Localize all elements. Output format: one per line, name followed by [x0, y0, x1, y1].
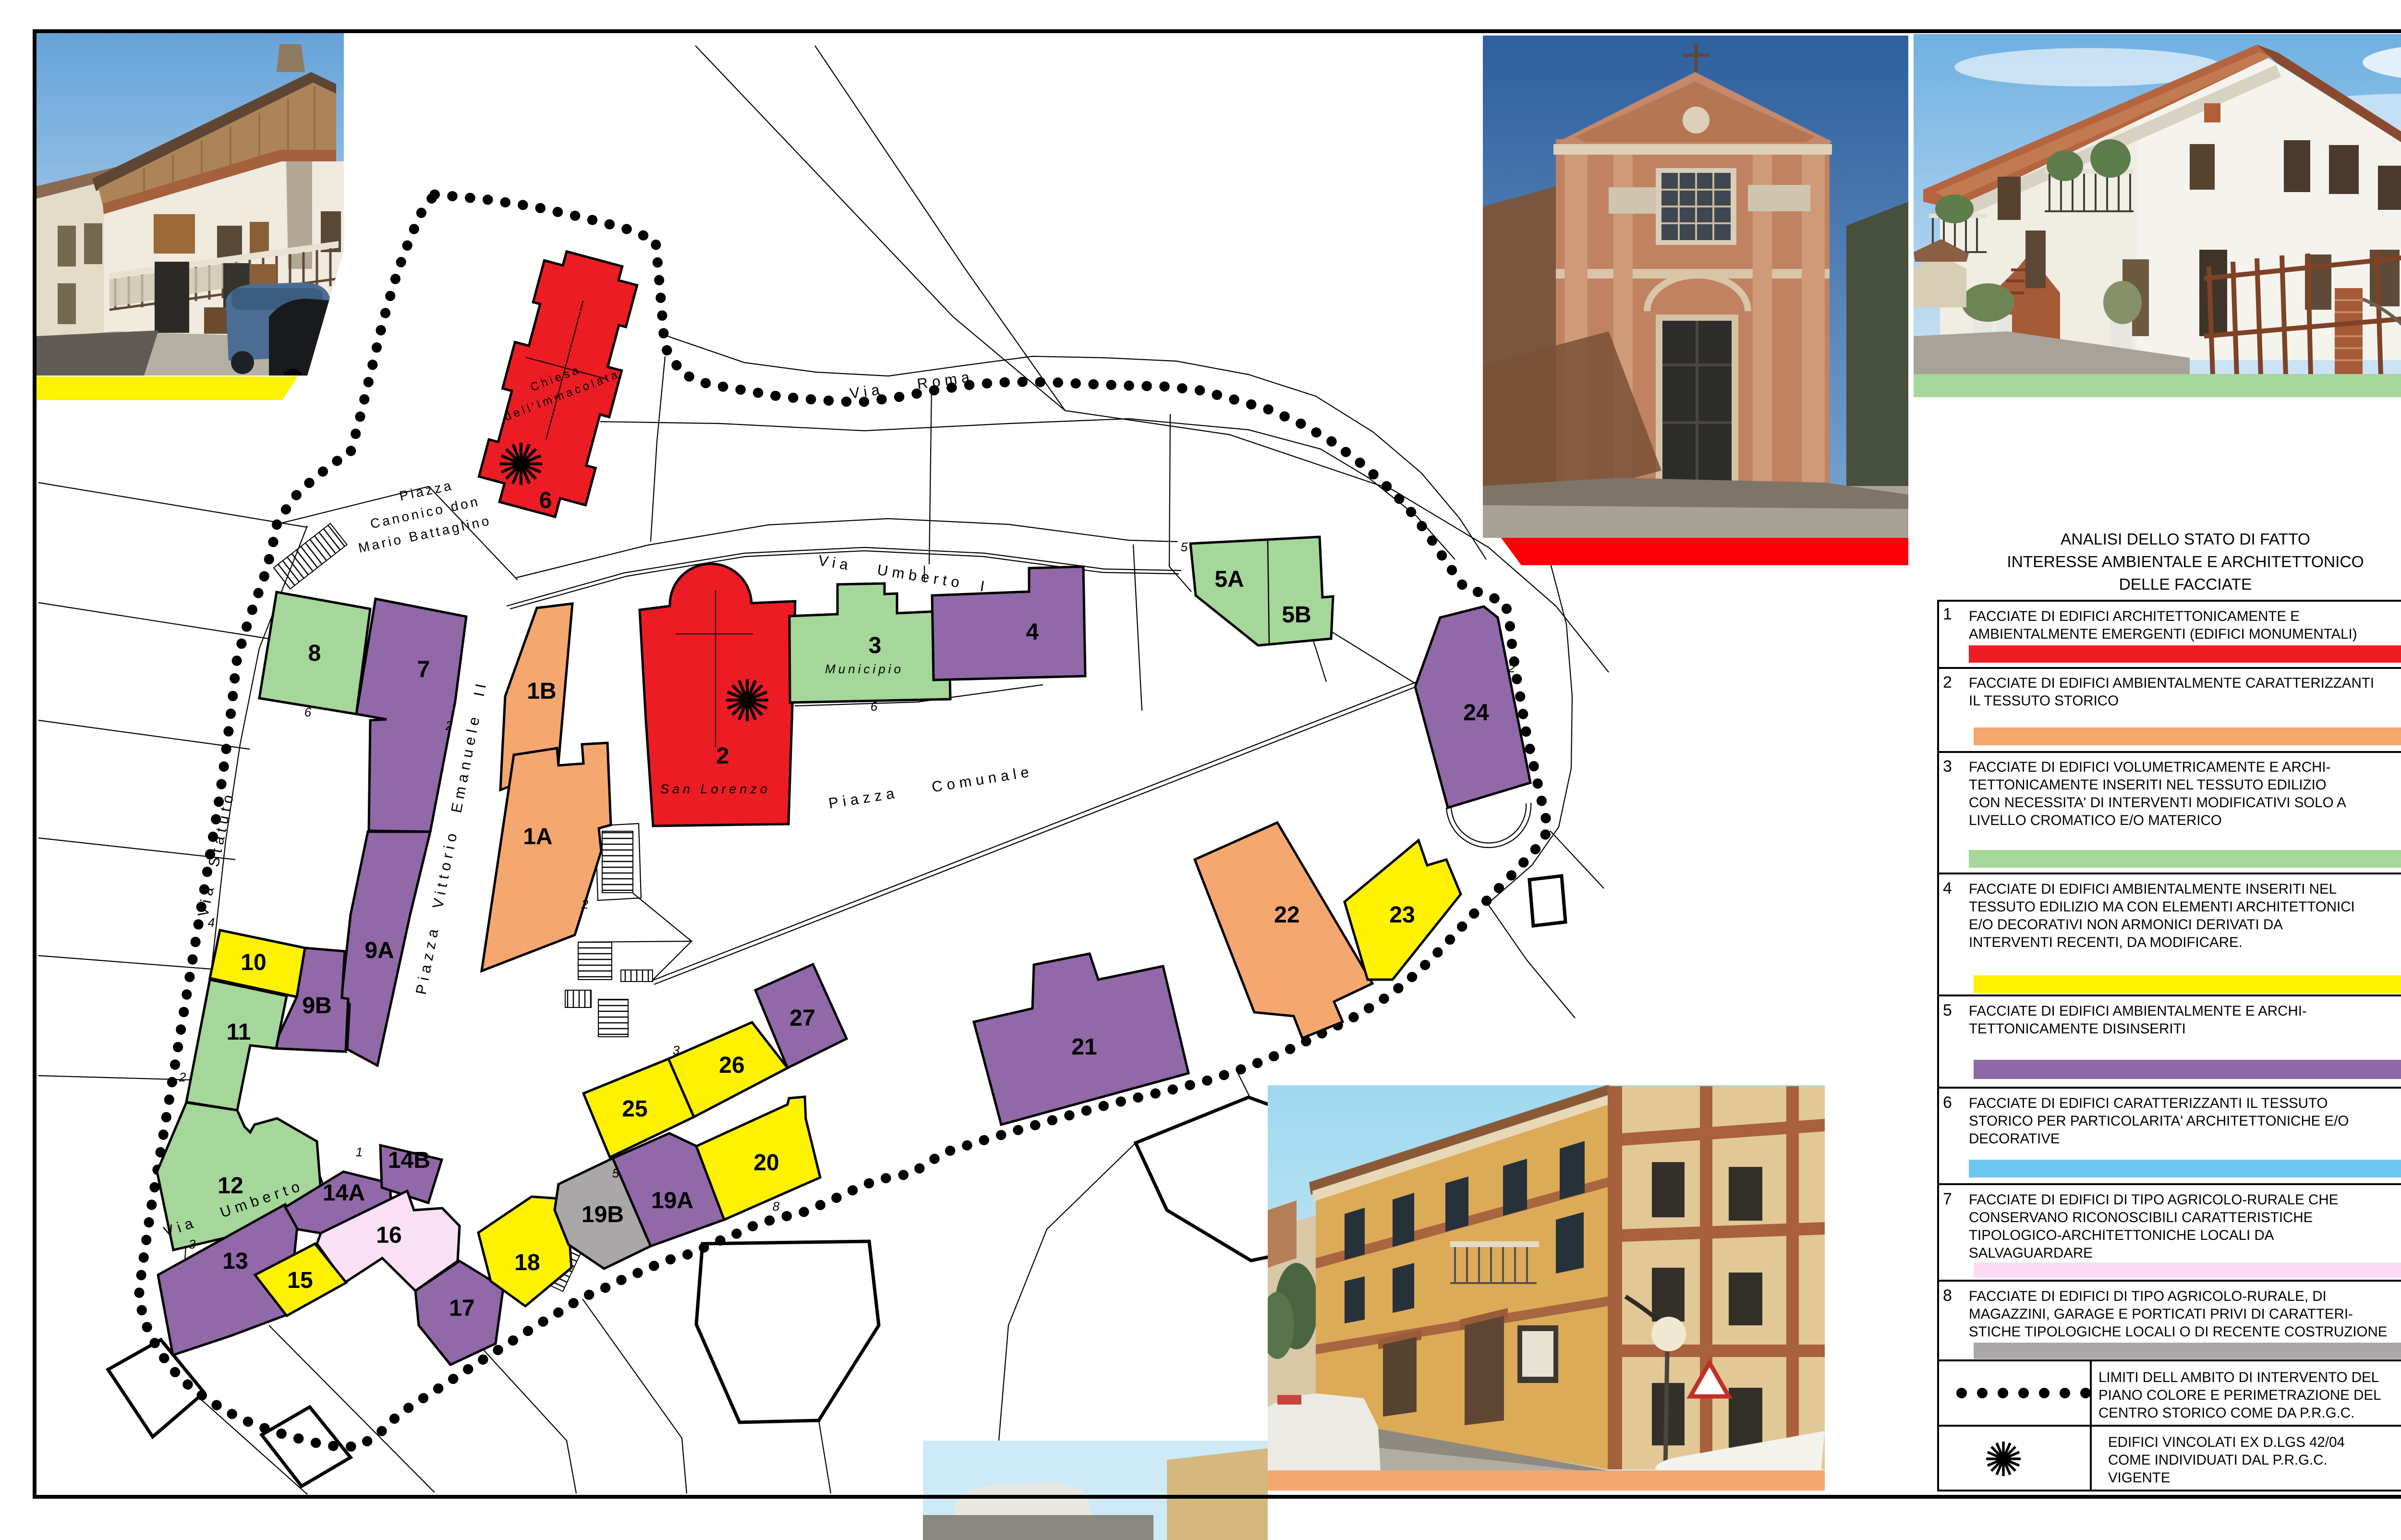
svg-text:11: 11 [227, 1019, 251, 1045]
svg-text:1: 1 [356, 1145, 363, 1159]
svg-text:5A: 5A [1214, 567, 1244, 592]
svg-text:2: 2 [1508, 661, 1516, 675]
svg-text:10: 10 [241, 950, 266, 975]
svg-text:3: 3 [869, 633, 882, 658]
svg-text:3: 3 [189, 1237, 196, 1251]
svg-text:LIMITI DELL AMBITO DI INTERVEN: LIMITI DELL AMBITO DI INTERVENTO DEL [2098, 1370, 2379, 1385]
svg-text:19A: 19A [651, 1188, 693, 1213]
svg-text:FACCIATE DI EDIFICI DI TIPO AG: FACCIATE DI EDIFICI DI TIPO AGRICOLO-RUR… [1969, 1192, 2338, 1208]
svg-text:DELLE FACCIATE: DELLE FACCIATE [2119, 576, 2252, 594]
svg-text:EDIFICI VINCOLATI EX D.LGS 42/: EDIFICI VINCOLATI EX D.LGS 42/04 [2108, 1434, 2345, 1450]
svg-text:6: 6 [539, 488, 552, 513]
svg-text:E/O DECORATIVI NON ARMONICI DE: E/O DECORATIVI NON ARMONICI DERIVATI DA [1969, 917, 2283, 933]
svg-text:8: 8 [773, 1199, 780, 1213]
svg-text:4: 4 [1943, 879, 1952, 897]
svg-text:15: 15 [287, 1268, 313, 1293]
svg-text:6: 6 [871, 699, 878, 714]
svg-text:3: 3 [673, 1043, 680, 1057]
svg-text:FACCIATE DI EDIFICI VOLUMETRIC: FACCIATE DI EDIFICI VOLUMETRICAMENTE E A… [1969, 759, 2330, 775]
svg-text:7: 7 [1943, 1190, 1952, 1208]
svg-text:17: 17 [449, 1296, 474, 1321]
svg-text:CENTRO STORICO COME DA P.R.G.C: CENTRO STORICO COME DA P.R.G.C. [2098, 1405, 2354, 1421]
svg-text:2: 2 [445, 718, 453, 733]
svg-text:DECORATIVE: DECORATIVE [1969, 1131, 2060, 1147]
svg-text:6: 6 [1943, 1093, 1952, 1112]
svg-text:2: 2 [581, 897, 589, 911]
svg-text:CON NECESSITA' DI INTERVENTI M: CON NECESSITA' DI INTERVENTI MODIFICATIV… [1969, 795, 2346, 811]
svg-text:9B: 9B [302, 993, 331, 1019]
svg-text:Municipio: Municipio [825, 662, 904, 676]
svg-text:7: 7 [417, 657, 430, 682]
svg-text:18: 18 [514, 1250, 540, 1275]
svg-text:VIGENTE: VIGENTE [2108, 1470, 2171, 1486]
svg-text:21: 21 [1071, 1034, 1097, 1060]
svg-text:FACCIATE DI EDIFICI DI TIPO AG: FACCIATE DI EDIFICI DI TIPO AGRICOLO-RUR… [1969, 1288, 2327, 1304]
svg-text:22: 22 [1274, 902, 1299, 928]
svg-text:TETTONICAMENTE INSERITI NEL TE: TETTONICAMENTE INSERITI NEL TESSUTO EDIL… [1969, 777, 2327, 793]
svg-text:INTERESSE AMBIENTALE E ARCHITE: INTERESSE AMBIENTALE E ARCHITETTONICO [2007, 553, 2364, 571]
svg-text:TIPOLOGICO-ARCHITETTONICHE LOC: TIPOLOGICO-ARCHITETTONICHE LOCALI DA [1969, 1227, 2274, 1243]
svg-text:FACCIATE DI EDIFICI ARCHITETTO: FACCIATE DI EDIFICI ARCHITETTONICAMENTE … [1969, 608, 2300, 624]
svg-text:FACCIATE DI EDIFICI CARATTERIZ: FACCIATE DI EDIFICI CARATTERIZZANTI IL T… [1969, 1095, 2328, 1111]
svg-text:1: 1 [1943, 605, 1952, 623]
svg-text:STICHE TIPOLOGICHE LOCALI O DI: STICHE TIPOLOGICHE LOCALI O DI RECENTE C… [1969, 1324, 2387, 1340]
svg-text:27: 27 [789, 1006, 815, 1031]
svg-text:14B: 14B [388, 1148, 430, 1173]
svg-text:MAGAZZINI, GARAGE E PORTICATI: MAGAZZINI, GARAGE E PORTICATI PRIVI DI C… [1969, 1306, 2353, 1322]
svg-text:INTERVENTI RECENTI, DA MODIFIC: INTERVENTI RECENTI, DA MODIFICARE. [1969, 934, 2243, 950]
svg-text:CONSERVANO RICONOSCIBILI CARAT: CONSERVANO RICONOSCIBILI CARATTERISTICHE [1969, 1210, 2313, 1225]
svg-text:8: 8 [1943, 1286, 1952, 1305]
svg-text:5B: 5B [1282, 602, 1311, 628]
svg-text:2: 2 [716, 743, 729, 769]
svg-text:ANALISI DELLO STATO DI FATTO: ANALISI DELLO STATO DI FATTO [2061, 531, 2310, 548]
svg-text:4: 4 [1026, 619, 1039, 645]
svg-text:8: 8 [308, 641, 321, 666]
svg-text:SALVAGUARDARE: SALVAGUARDARE [1969, 1245, 2093, 1261]
svg-text:FACCIATE DI EDIFICI AMBIENTALM: FACCIATE DI EDIFICI AMBIENTALMENTE E ARC… [1969, 1003, 2307, 1019]
svg-text:3: 3 [1943, 757, 1952, 776]
svg-text:1B: 1B [527, 679, 556, 704]
svg-text:1A: 1A [523, 824, 552, 849]
svg-text:2: 2 [179, 1070, 186, 1084]
svg-text:9A: 9A [364, 938, 394, 963]
svg-text:PIANO COLORE E PERIMETRAZIONE: PIANO COLORE E PERIMETRAZIONE DEL [2098, 1387, 2381, 1403]
svg-text:San Lorenzo: San Lorenzo [660, 782, 771, 796]
svg-text:13: 13 [222, 1249, 248, 1274]
svg-text:2: 2 [1943, 673, 1952, 691]
svg-text:COME INDIVIDUATI DAL P.R.G.C.: COME INDIVIDUATI DAL P.R.G.C. [2108, 1452, 2328, 1468]
svg-text:5: 5 [1943, 1001, 1952, 1019]
svg-text:IL TESSUTO STORICO: IL TESSUTO STORICO [1969, 693, 2119, 709]
svg-text:AMBIENTALMENTE EMERGENTI (EDIF: AMBIENTALMENTE EMERGENTI (EDIFICI MONUME… [1969, 626, 2357, 642]
svg-text:STORICO PER PARTICOLARITA' ARC: STORICO PER PARTICOLARITA' ARCHITETTONIC… [1969, 1113, 2349, 1129]
svg-text:FACCIATE DI EDIFICI AMBIENTALM: FACCIATE DI EDIFICI AMBIENTALMENTE INSER… [1969, 881, 2337, 897]
svg-text:26: 26 [719, 1053, 744, 1078]
svg-text:TESSUTO EDILIZIO MA CON ELEMEN: TESSUTO EDILIZIO MA CON ELEMENTI ARCHITE… [1969, 899, 2355, 915]
svg-text:16: 16 [376, 1223, 401, 1248]
svg-text:25: 25 [622, 1096, 647, 1122]
svg-text:TETTONICAMENTE DISINSERITI: TETTONICAMENTE DISINSERITI [1969, 1021, 2186, 1037]
svg-text:20: 20 [753, 1150, 779, 1176]
svg-text:23: 23 [1389, 902, 1415, 928]
svg-text:24: 24 [1463, 700, 1489, 726]
svg-text:FACCIATE DI EDIFICI AMBIENTALM: FACCIATE DI EDIFICI AMBIENTALMENTE CARAT… [1969, 675, 2374, 691]
svg-text:5: 5 [1181, 540, 1188, 554]
svg-text:12: 12 [218, 1173, 243, 1199]
svg-text:6: 6 [304, 705, 312, 719]
svg-text:LIVELLO CROMATICO E/O MATERICO: LIVELLO CROMATICO E/O MATERICO [1969, 812, 2222, 828]
svg-text:19B: 19B [582, 1202, 624, 1227]
